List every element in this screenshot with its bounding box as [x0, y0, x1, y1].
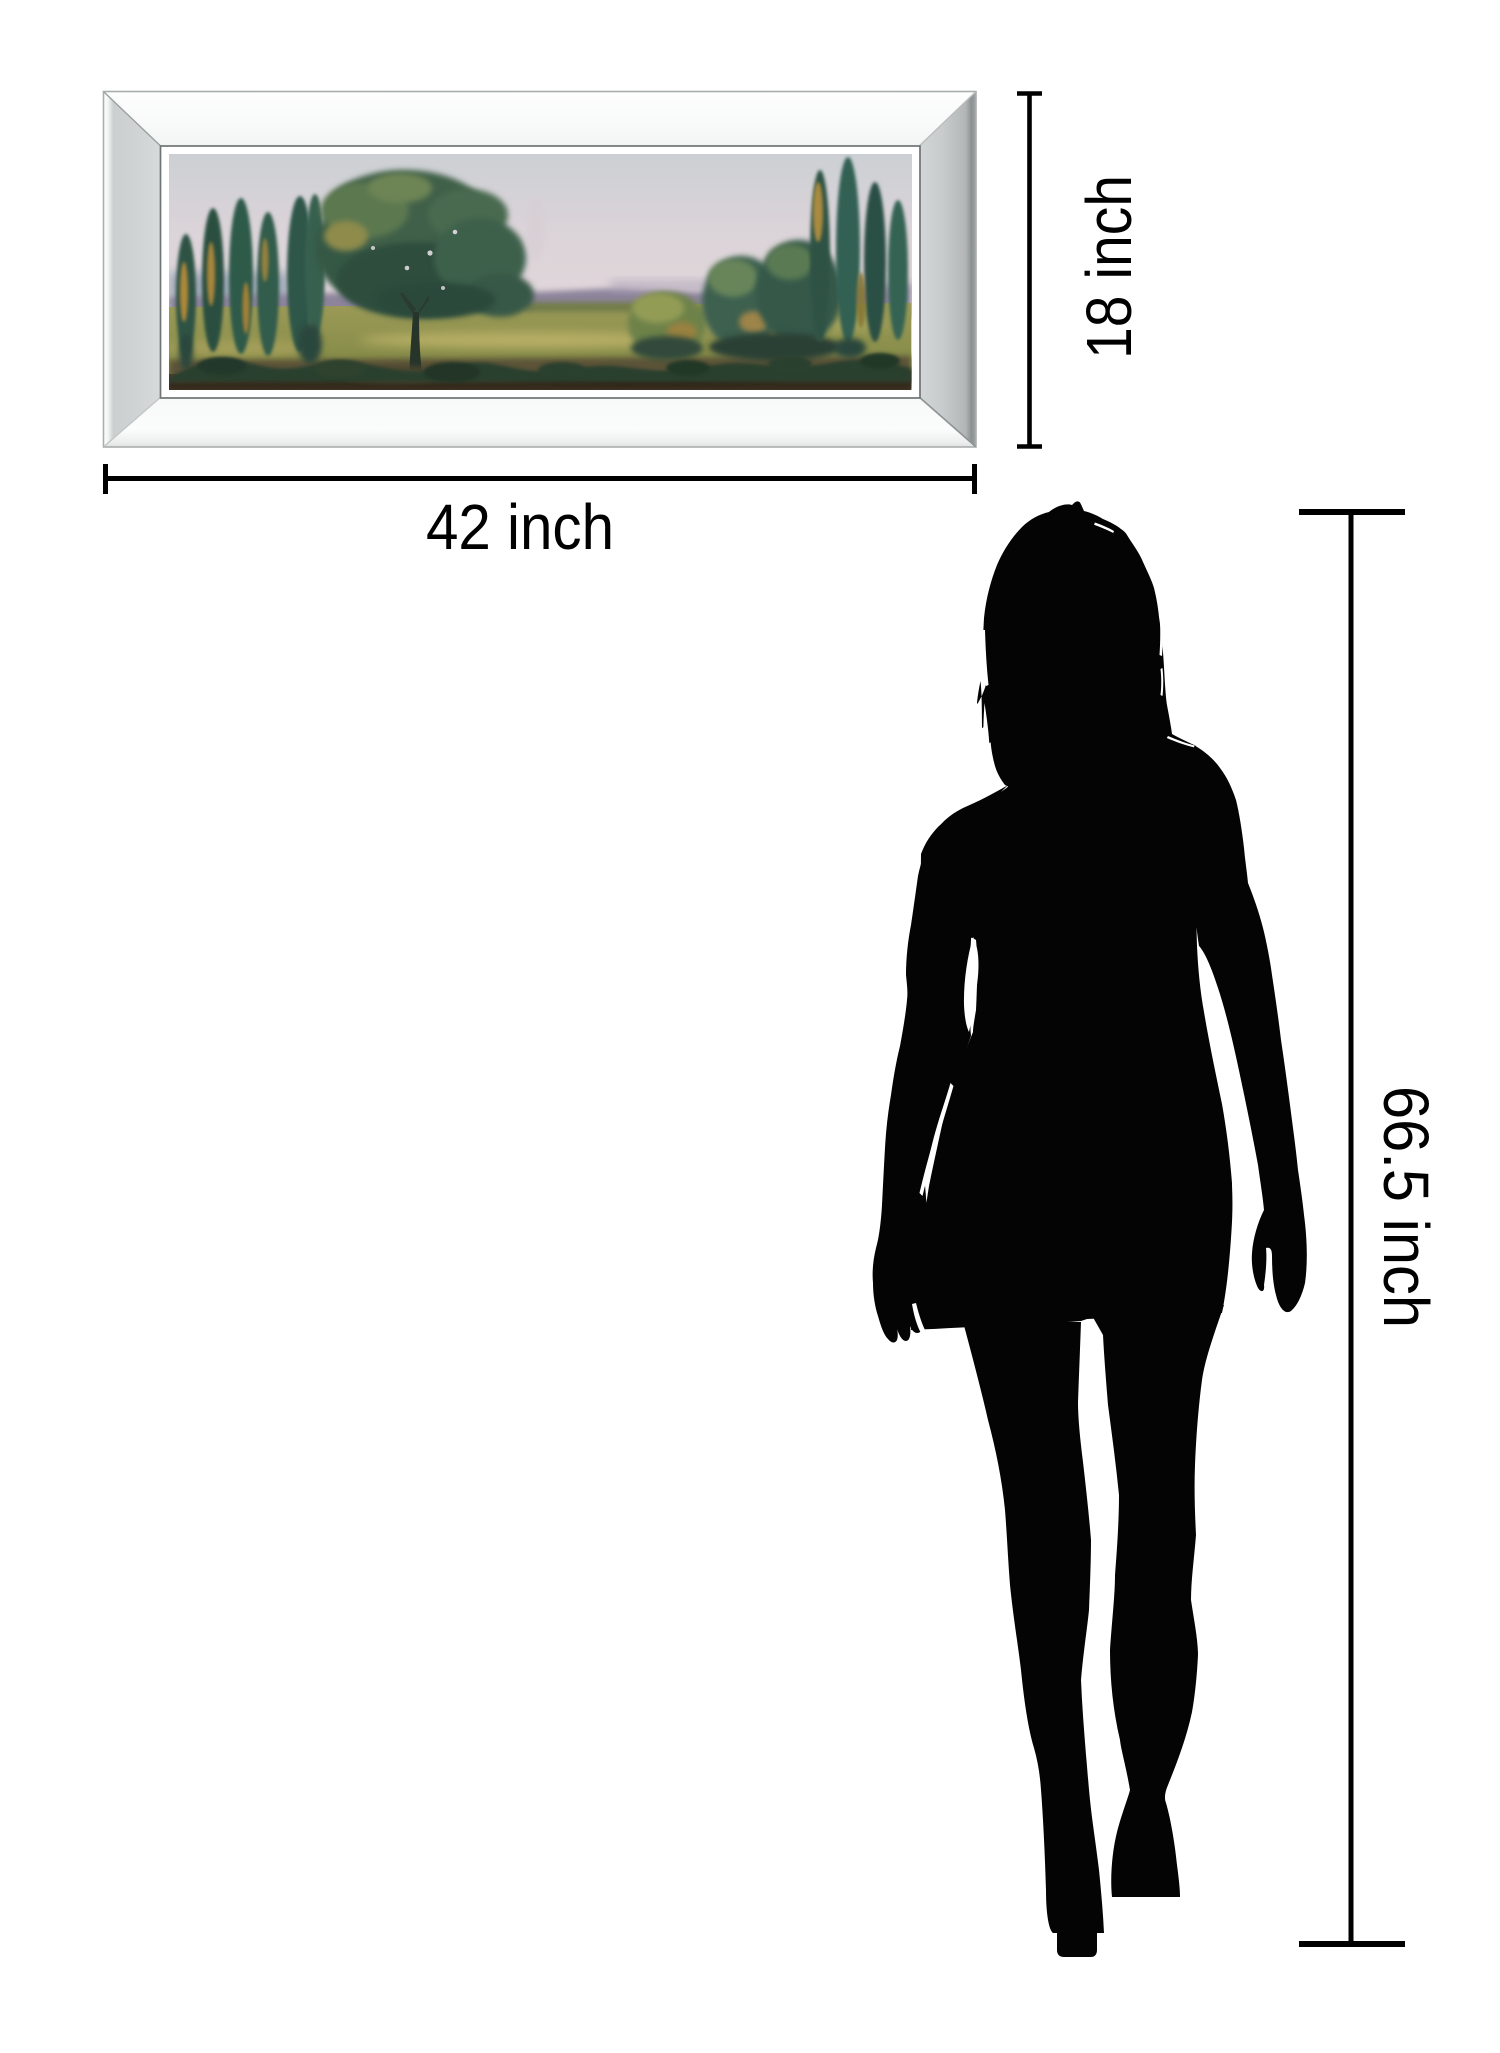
svg-text:42 inch: 42 inch — [426, 491, 614, 563]
svg-text:66.5 inch: 66.5 inch — [1370, 1086, 1442, 1328]
svg-text:18 inch: 18 inch — [1073, 175, 1145, 359]
